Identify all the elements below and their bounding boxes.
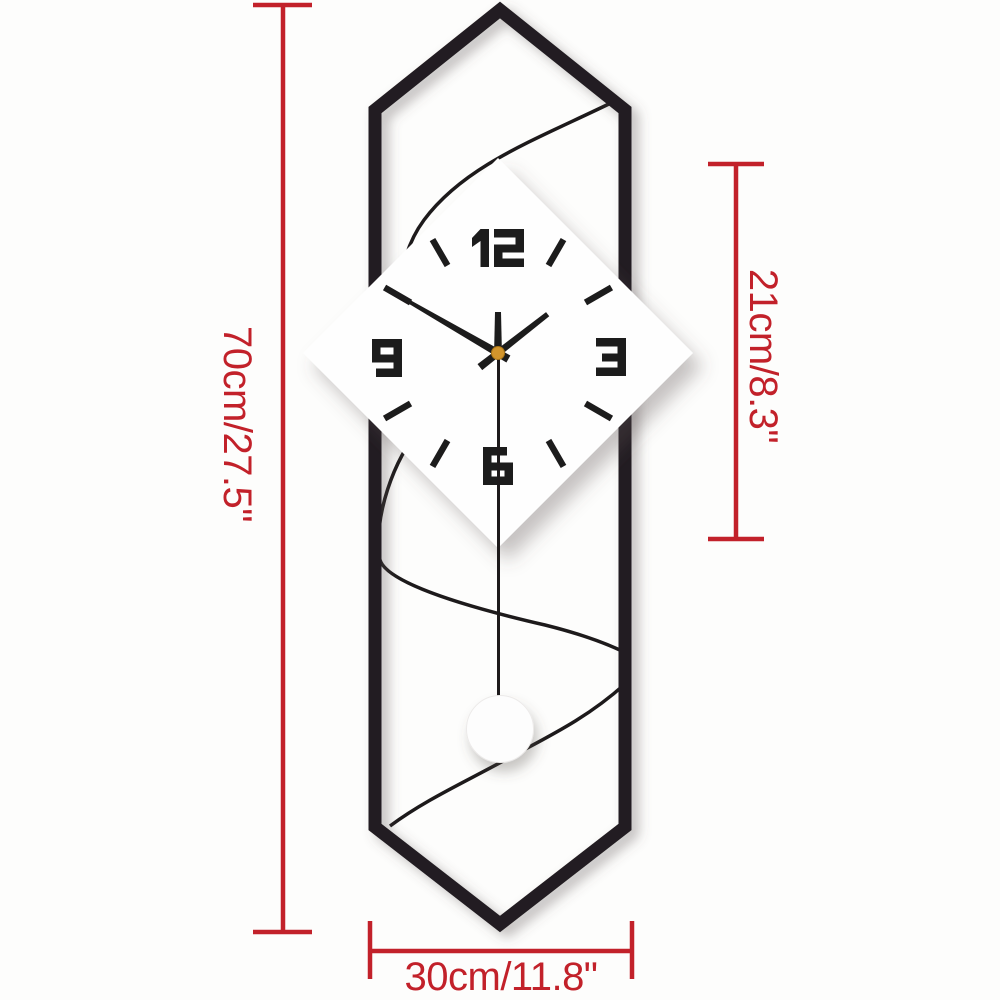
numeral-9 xyxy=(372,339,402,377)
pendulum-bob xyxy=(467,696,534,763)
product-diagram: 70cm/27.5" 21cm/8.3" 30cm/11.8" xyxy=(0,0,1000,1000)
width-dimension-label: 30cm/11.8" xyxy=(404,955,597,999)
height-dimension-line xyxy=(253,5,312,932)
clock-center-cap xyxy=(492,347,505,360)
face-dimension-label: 21cm/8.3" xyxy=(741,269,785,443)
height-dimension-label: 70cm/27.5" xyxy=(215,326,259,522)
